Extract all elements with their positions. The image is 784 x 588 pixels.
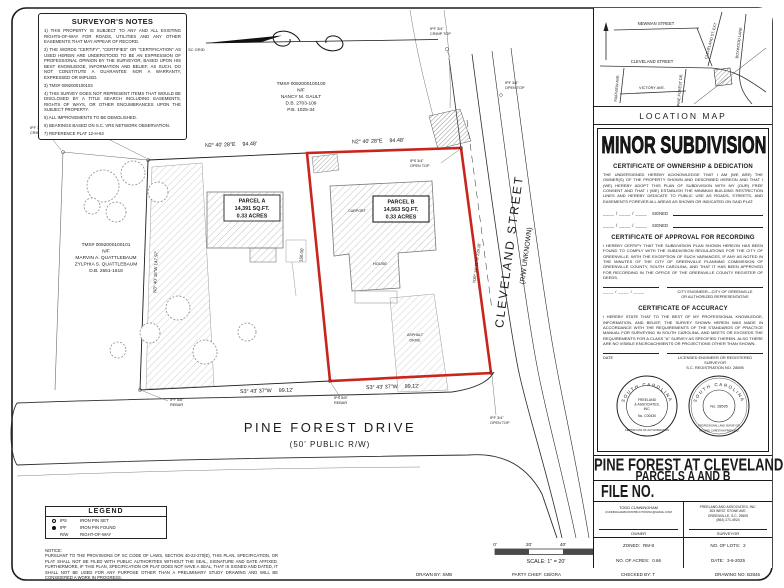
svg-text:FREELAND: FREELAND [638, 398, 657, 402]
legend-row: R/W RIGHT-OF-WAY [46, 531, 166, 538]
acres-label: NO. OF ACRES: [616, 558, 649, 563]
signature-row: ____ / ____ / ____ SIGNED [603, 210, 763, 216]
certificate-body: THE UNDERSIGNED HEREBY ACKNOWLEDGE THAT … [603, 172, 763, 204]
svg-text:REBAR: REBAR [334, 401, 347, 405]
map-street-cleveland: CLEVELAND STREET [631, 59, 674, 64]
pin-open-top-right: IPF 3/4" OPEN TOP [500, 81, 525, 96]
drawing-info-strip: DRAWN BY: SMB PARTY CHIEF: CB/GRA CHECKE… [408, 569, 768, 580]
svg-text:OPEN TOP: OPEN TOP [490, 421, 510, 425]
north-arrow-icon: SC GRID [188, 31, 438, 52]
walkway [292, 262, 296, 296]
legend-title: LEGEND [46, 507, 166, 517]
stats-grid: ZONED: RM-8 NO. OF LOTS: 2 NO. OF ACRES:… [594, 537, 772, 568]
cleveland-rw-label: (R/W UNKNOWN) [519, 227, 533, 285]
svg-text:& ASSOCIATES,: & ASSOCIATES, [634, 403, 659, 407]
notice-block: NOTICE: PURSUANT TO THE PROVISIONS OF SC… [45, 548, 278, 581]
svg-text:PARCEL B: PARCEL B [387, 200, 414, 206]
lots-label: NO. OF LOTS: [710, 543, 740, 548]
certificate-title: CERTIFICATE OF OWNERSHIP & DEDICATION [603, 164, 763, 170]
file-number-label: FILE NO. [601, 481, 654, 501]
pin-ips-bottom: IPS 5/8" REBAR [328, 379, 348, 405]
legend-desc: IRON PIN FOUND [80, 525, 116, 530]
licensed-surveyor-label: LICENSED ENGINEER OR REGISTERED SURVEYOR [667, 355, 763, 365]
date-value: 3-6-2025 [727, 558, 745, 563]
lots-cell: NO. OF LOTS: 2 [683, 538, 772, 553]
scale-bar: 0' 20' 40' 60' SCALE: 1" = 20' [493, 542, 600, 565]
pine-forest-drive-label: PINE FOREST DRIVE [244, 420, 416, 435]
date-blank: ____ / ____ / ____ [603, 289, 644, 294]
north-grid-label: SC GRID [188, 47, 205, 52]
certificate-title: CERTIFICATE OF APPROVAL FOR RECORDING [603, 235, 763, 241]
owner-email: CUNNINGHAMCONSTRUCTIONSC@GMAIL.COM [605, 510, 672, 514]
surveyor-notes-box: SURVEYOR'S NOTES 1) THIS PROPERTY IS SUB… [38, 13, 187, 140]
svg-text:IPF 3/4": IPF 3/4" [505, 81, 519, 85]
signed-label: SIGNED [652, 211, 668, 216]
surveyor-signature-row: DATE LICENSED ENGINEER OR REGISTERED SUR… [603, 353, 763, 370]
zoned-value: RM-8 [643, 543, 654, 548]
note-item: 7) REFERENCE PLAT 12-H-63 [44, 131, 181, 137]
date-line [603, 287, 659, 288]
signed-label: SIGNED [652, 223, 668, 228]
ipf-symbol-icon [52, 526, 56, 530]
svg-text:IPS 5/8": IPS 5/8" [334, 396, 348, 400]
owner-cell: TODD CUNNINGHAM CUNNINGHAMCONSTRUCTIONSC… [594, 502, 683, 537]
svg-text:N/F: N/F [102, 249, 110, 255]
acres-cell: NO. OF ACRES: 0.66 [594, 553, 683, 568]
svg-text:PROFESSIONAL LAND SURVEYOR: PROFESSIONAL LAND SURVEYOR [698, 425, 740, 428]
note-item: 2) THE WORDS "CERTIFY", "CERTIFIES" OR "… [44, 47, 181, 80]
surveyor-notes-title: SURVEYOR'S NOTES [44, 17, 181, 26]
note-item: 6) BEARINGS BASED ON S.C. VRS NETWORK OB… [44, 123, 181, 129]
map-street-newman: NEWMAN STREET [638, 21, 675, 26]
map-north-arrow-icon [604, 22, 609, 60]
svg-text:0.33 ACRES: 0.33 ACRES [237, 214, 268, 220]
svg-text:TMS# 0092000100101: TMS# 0092000100101 [82, 242, 131, 248]
parcel-a-label: PARCEL A 14,391 SQ.FT. 0.33 ACRES [224, 195, 280, 221]
date-blank: ____ / ____ / ____ [603, 223, 647, 228]
surveyor-seal: SOUTH CAROLINA PROFESSIONAL LAND SURVEYO… [687, 374, 751, 438]
svg-text:IPF 3/4": IPF 3/4" [430, 27, 444, 31]
svg-text:150.00': 150.00' [298, 247, 304, 262]
certificate-title: CERTIFICATE OF ACCURACY [603, 306, 763, 312]
svg-text:IPF 5/8": IPF 5/8" [170, 398, 184, 402]
svg-text:40': 40' [560, 542, 566, 548]
certificate-accuracy: CERTIFICATE OF ACCURACY I HEREBY STATE T… [603, 306, 763, 346]
legend-row: IPS IRON PIN SET [46, 517, 166, 524]
zoned-label: ZONED: [623, 543, 640, 548]
svg-text:REBAR: REBAR [170, 403, 183, 407]
note-item: 4) THIS SURVEY DOES NOT REPRESENT ITEMS … [44, 91, 181, 113]
location-map-section: NEWMAN STREET CLEVELAND STREET FAIRVIEW … [594, 8, 772, 125]
svg-text:N2° 40' 28"E94.48': N2° 40' 28"E94.48' [205, 141, 257, 149]
svg-text:20': 20' [526, 542, 532, 548]
svg-text:14,563 SQ.FT.: 14,563 SQ.FT. [384, 207, 419, 213]
checked-by: CHECKED BY: T [621, 572, 655, 577]
svg-text:ZYLPHIA S. QUATTLEBAUM: ZYLPHIA S. QUATTLEBAUM [75, 262, 138, 268]
map-street-victory: VICTORY AVE. [639, 86, 665, 90]
date-cell: DATE: 3-6-2025 [683, 553, 772, 568]
svg-text:TMS# 0092000100100: TMS# 0092000100100 [277, 81, 326, 87]
svg-text:OPEN TOP: OPEN TOP [410, 164, 430, 168]
svg-text:CRIMP TOP: CRIMP TOP [430, 32, 451, 36]
party-chief: PARTY CHIEF: CB/GRA [512, 572, 561, 577]
gault-owner-label: TMS# 0092000100100 N/F NANCY M. GAULT D.… [277, 81, 326, 113]
svg-text:NANCY M. GAULT: NANCY M. GAULT [281, 94, 321, 100]
surveyor-phone: (864) 271-4924 [716, 518, 739, 522]
cleveland-street-label: CLEVELAND STREET [492, 174, 526, 329]
svg-text:OPEN TOP: OPEN TOP [505, 86, 525, 90]
svg-text:INC.: INC. [644, 407, 651, 411]
svg-text:N/F: N/F [297, 88, 305, 94]
house-label: HOUSE [373, 261, 388, 266]
date-line [603, 353, 659, 354]
signature-row: ____ / ____ / ____ SIGNED [603, 222, 763, 228]
map-street-fairview: FAIRVIEW AVE. [614, 74, 620, 102]
note-item: 5) ALL IMPROVEMENTS TO BE DEMOLISHED. [44, 115, 181, 121]
legend-abbr: IPS [60, 518, 76, 523]
location-map-drawing: NEWMAN STREET CLEVELAND STREET FAIRVIEW … [594, 8, 773, 106]
svg-text:CERTIFICATE OF AUTHORIZATION: CERTIFICATE OF AUTHORIZATION [625, 428, 669, 432]
carport-label: CARPORT [348, 209, 366, 213]
project-title: PINE FOREST AT CLEVELAND PARCELS A AND B [594, 455, 772, 480]
legend-abbr: IPF [60, 525, 76, 530]
zoned-cell: ZONED: RM-8 [594, 538, 683, 553]
svg-text:MICHAEL CHRISTIAN FREELAND: MICHAEL CHRISTIAN FREELAND [699, 430, 738, 433]
shed [312, 154, 339, 173]
legend-box: LEGEND IPS IRON PIN SET IPF IRON PIN FOU… [45, 506, 167, 539]
pin-open-top-bottom-right: IPF 3/4" OPEN TOP [489, 371, 510, 425]
owner-surveyor-row: TODD CUNNINGHAM CUNNINGHAMCONSTRUCTIONSC… [594, 501, 772, 537]
signature-line [667, 287, 763, 288]
certificate-recording: CERTIFICATE OF APPROVAL FOR RECORDING I … [603, 235, 763, 299]
authorization-seal: SOUTH CAROLINA CERTIFICATE OF AUTHORIZAT… [615, 374, 679, 438]
ips-symbol-icon [52, 519, 56, 523]
scale-label: SCALE: 1" = 20' [527, 559, 566, 565]
lots-value: 2 [743, 543, 746, 548]
owner-label: OWNER [599, 529, 677, 536]
registration-label: S.C. REGISTRATION NO. 28595 [667, 365, 763, 370]
drawn-by: DRAWN BY: SMB [416, 572, 452, 577]
acres-value: 0.66 [652, 558, 661, 563]
legend-desc: IRON PIN SET [80, 518, 109, 523]
legend-row: IPF IRON PIN FOUND [46, 524, 166, 531]
svg-text:PARCEL A: PARCEL A [239, 199, 266, 205]
signature-line [673, 222, 763, 228]
representative-label: OR AUTHORIZED REPRESENTATIVE [667, 294, 763, 299]
subdivision-section: MINOR SUBDIVISION CERTIFICATE OF OWNERSH… [594, 125, 772, 455]
signature-line [667, 353, 763, 354]
surveyor-label: SURVEYOR [689, 529, 766, 536]
asphalt-label-2: DRIVE [410, 339, 422, 343]
subdivision-box: MINOR SUBDIVISION CERTIFICATE OF OWNERSH… [597, 128, 769, 452]
svg-text:N2° 40' 28"E94.48': N2° 40' 28"E94.48' [352, 138, 404, 146]
svg-text:N39° 34' 51"W 229.16': N39° 34' 51"W 229.16' [471, 242, 481, 283]
notice-body: PURSUANT TO THE PROVISIONS OF SC CODE OF… [45, 553, 278, 580]
svg-text:No. C00430: No. C00430 [638, 414, 656, 418]
asphalt-label-1: ASPHALT [407, 333, 424, 337]
neighbor-line [55, 152, 63, 390]
date-label: DATE: [711, 558, 724, 563]
svg-text:No. 28595: No. 28595 [710, 405, 728, 409]
site-improvements [84, 154, 448, 392]
pin-crimp-top-right: IPF 3/4" CRIMP TOP [430, 27, 451, 57]
svg-text:14,391 SQ.FT.: 14,391 SQ.FT. [235, 206, 270, 212]
driveway-apron [429, 109, 471, 149]
certificate-ownership: CERTIFICATE OF OWNERSHIP & DEDICATION TH… [603, 164, 763, 228]
quattlebaum-owner-label: TMS# 0092000100101 N/F MARVIN A. QUATTLE… [75, 242, 138, 274]
certificate-body: I HEREBY STATE THAT TO THE BEST OF MY PR… [603, 314, 763, 346]
seals-row: SOUTH CAROLINA CERTIFICATE OF AUTHORIZAT… [603, 374, 763, 438]
legend-abbr: R/W [60, 532, 76, 537]
svg-text:IPF 3/4": IPF 3/4" [490, 416, 504, 420]
svg-text:S3° 43' 37"W99.12': S3° 43' 37"W99.12' [240, 388, 293, 395]
pin-rebar-bottom-left: IPF 5/8" REBAR [138, 388, 184, 407]
drawing-number: DRAWING NO: B2845 [715, 572, 760, 577]
site-marker [714, 68, 732, 86]
date-blank: ____ / ____ / ____ [603, 211, 647, 216]
location-map-title: LOCATION MAP [594, 106, 772, 125]
legend-desc: RIGHT-OF-WAY [80, 532, 111, 537]
certificate-body: I HEREBY CERTIFY THAT THE SUBDIVISION PL… [603, 243, 763, 280]
svg-text:P.B. 1025-34: P.B. 1025-34 [287, 107, 315, 113]
svg-text:MARVIN A. QUATTLEBAUM: MARVIN A. QUATTLEBAUM [75, 255, 136, 261]
date-label: DATE [603, 355, 659, 360]
note-item: 1) THIS PROPERTY IS SUBJECT TO ANY AND A… [44, 28, 181, 45]
parcel-b-label: PARCEL B 14,563 SQ.FT. 0.33 ACRES [373, 196, 429, 222]
svg-text:D.B. 2551-1618: D.B. 2551-1618 [89, 268, 123, 274]
plat-sheet: SC GRID TMS# 0092000100100 N/F NANCY M. … [0, 0, 784, 588]
subdivision-title: MINOR SUBDIVISION [601, 134, 764, 161]
signature-line [673, 210, 763, 216]
signature-row: ____ / ____ / ____ CITY ENGINEER—CITY OF… [603, 287, 763, 299]
svg-text:IPS 3/4": IPS 3/4" [410, 159, 424, 163]
surveyor-cell: FREELAND AND ASSOCIATES, INC. 303 WEST S… [683, 502, 772, 537]
svg-text:D.B. 2703-109: D.B. 2703-109 [286, 101, 317, 107]
svg-text:0': 0' [493, 542, 497, 548]
note-item: 3) TMS# 0092000100103 [44, 83, 181, 89]
svg-text:0.33 ACRES: 0.33 ACRES [386, 215, 417, 221]
pine-forest-rw-label: (50' PUBLIC R/W) [290, 440, 371, 449]
right-panel: NEWMAN STREET CLEVELAND STREET FAIRVIEW … [593, 8, 772, 568]
